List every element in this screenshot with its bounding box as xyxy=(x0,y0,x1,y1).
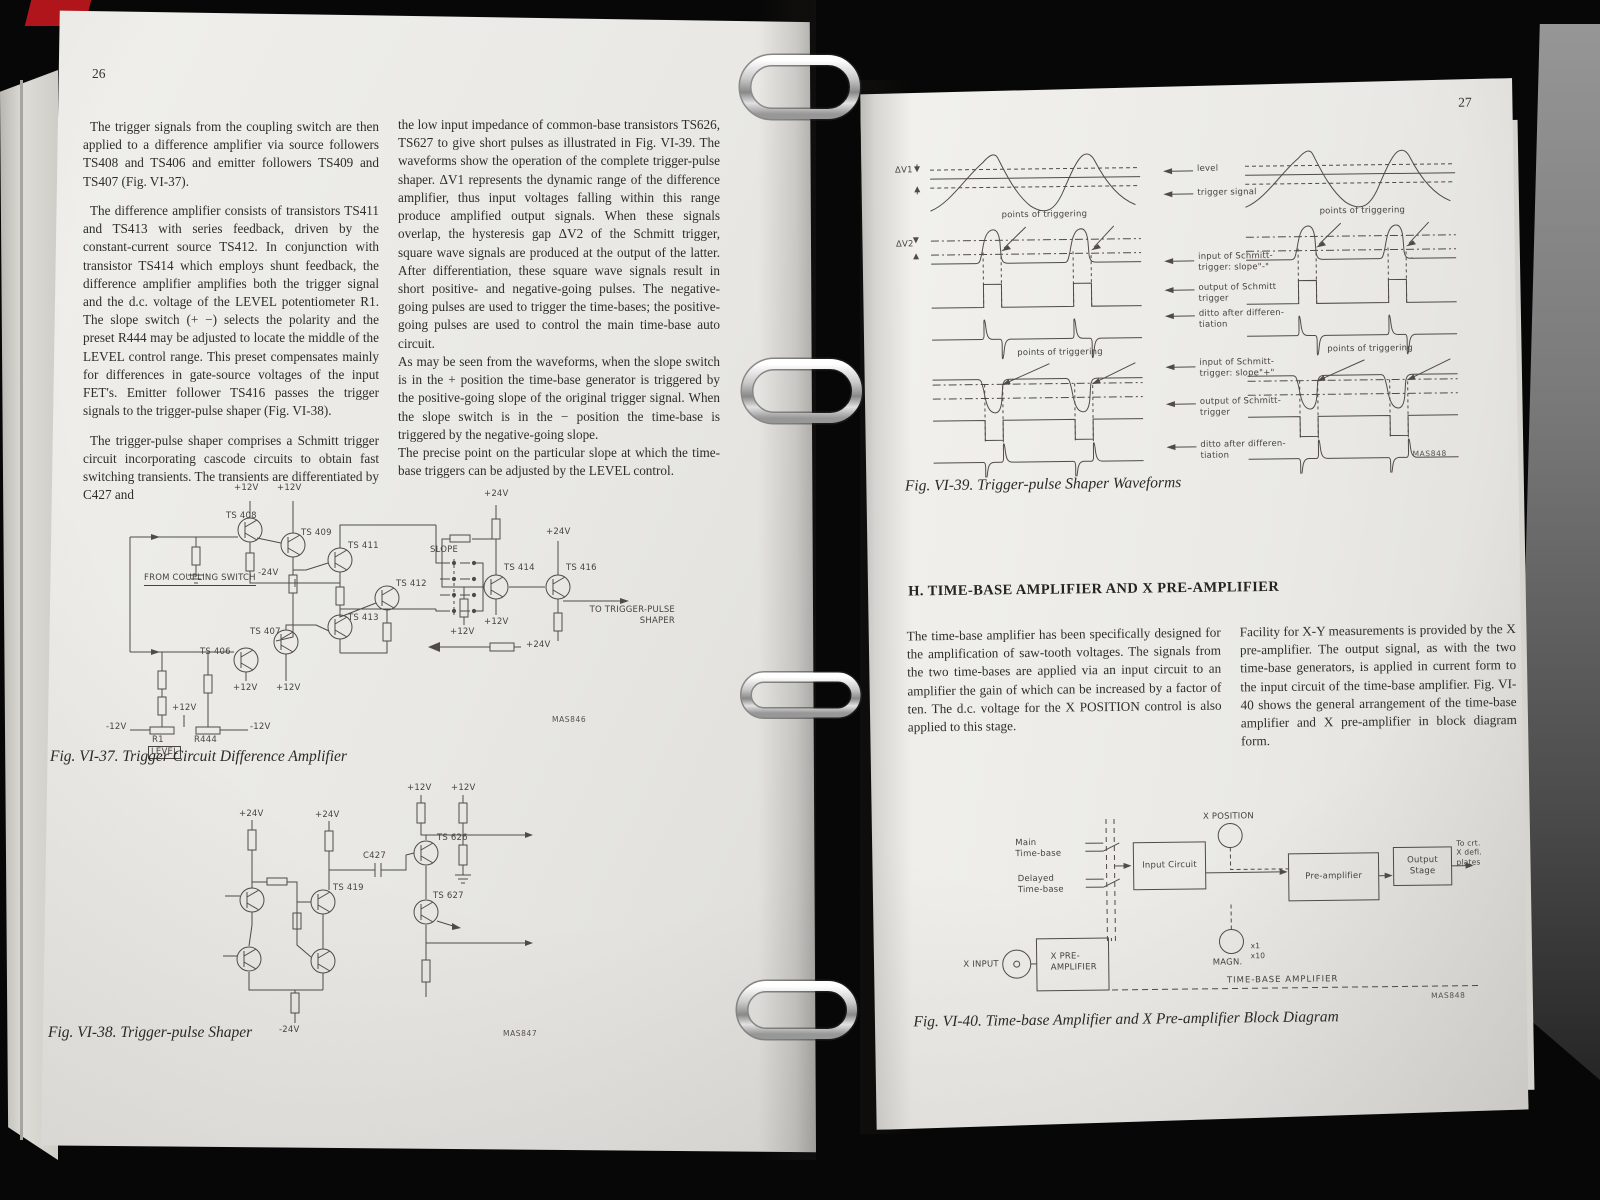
points-of-triggering-label: points of triggering xyxy=(1320,205,1406,217)
to-trigger-pulse-shaper-label: TO TRIGGER-PULSE SHAPER xyxy=(565,605,675,626)
voltage-label: -24V xyxy=(258,568,279,579)
voltage-label: +12V xyxy=(233,683,258,694)
voltage-label: +24V xyxy=(484,489,509,500)
section-h-col1: The time-base amplifier has been specifi… xyxy=(907,624,1222,737)
voltage-label: +12V xyxy=(172,703,197,714)
delta-v2-label: ΔV2 xyxy=(896,239,914,250)
schematic-drawing xyxy=(205,775,635,1040)
magn-x10-label: x10 xyxy=(1251,951,1266,961)
ditto-label: ditto after differen- tiation xyxy=(1199,308,1285,330)
main-time-base-label: Main Time-base xyxy=(1015,838,1061,860)
transistor-label: TS 626 xyxy=(437,833,468,844)
fig-vi-40-block-diagram: Main Time-base Delayed Time-base Input C… xyxy=(973,786,1486,1020)
voltage-label: +12V xyxy=(451,783,476,794)
r1-label: R1 xyxy=(152,735,164,746)
fig-vi-38-schematic: +24V +24V +12V +12V C427 TS 419 TS 626 T… xyxy=(205,775,635,1040)
fig-vi-39-caption: Fig. VI-39. Trigger-pulse Shaper Wavefor… xyxy=(905,474,1182,495)
input-schmitt-minus-label: input of Schmitt- trigger: slope"-" xyxy=(1198,251,1273,273)
transistor-label: TS 414 xyxy=(504,563,535,574)
transistor-label: TS 412 xyxy=(396,579,427,590)
delta-v1-label: ΔV1 xyxy=(895,165,913,176)
voltage-label: +12V xyxy=(277,483,302,494)
right-column-text: the low input impedance of common-base t… xyxy=(398,116,720,480)
voltage-label: -24V xyxy=(279,1025,300,1036)
from-coupling-switch-label: FROM COUPLING SWITCH xyxy=(144,573,256,586)
magn-x1-label: x1 xyxy=(1250,941,1260,950)
voltage-label: +24V xyxy=(239,809,264,820)
magn-label: MAGN. xyxy=(1213,957,1243,968)
fig-vi-39-waveforms: ΔV1 ΔV2 level trigger signal points of t… xyxy=(895,126,1479,478)
voltage-label: +24V xyxy=(546,527,571,538)
paragraph: Facility for X-Y measurements is provide… xyxy=(1240,620,1518,751)
right-page: 27 xyxy=(860,78,1529,1130)
transistor-label: TS 406 xyxy=(200,647,231,658)
points-of-triggering-label: points of triggering xyxy=(1002,209,1088,221)
section-h-heading: H. TIME-BASE AMPLIFIER AND X PRE-AMPLIFI… xyxy=(908,579,1279,601)
transistor-label: TS 411 xyxy=(348,541,379,552)
points-of-triggering-label: points of triggering xyxy=(1327,343,1413,355)
page-number-right: 27 xyxy=(1458,95,1472,111)
voltage-label: +24V xyxy=(315,810,340,821)
page-number-left: 26 xyxy=(92,66,106,82)
section-h-col2: Facility for X-Y measurements is provide… xyxy=(1240,620,1518,751)
input-schmitt-plus-label: input of Schmitt- trigger: slope"+" xyxy=(1199,357,1274,379)
paragraph: the low input impedance of common-base t… xyxy=(398,116,720,353)
voltage-label: +12V xyxy=(407,783,432,794)
binder-ring xyxy=(737,668,867,724)
paragraph: The time-base amplifier has been specifi… xyxy=(907,624,1222,737)
voltage-label: +12V xyxy=(234,483,259,494)
paragraph: As may be seen from the waveforms, when … xyxy=(398,353,720,444)
waveform-drawing xyxy=(895,126,1479,478)
drawing-code: MAS848 xyxy=(1412,449,1446,458)
binder-photo: 26 The trigger signals from the coupling… xyxy=(0,0,1600,1200)
output-schmitt-label: output of Schmitt trigger xyxy=(1198,282,1276,304)
output-schmitt-label: output of Schmitt- trigger xyxy=(1200,396,1281,418)
level-label: level xyxy=(1197,164,1218,175)
fig-vi-37-schematic: +12V +12V FROM COUPLING SWITCH TS 408 TS… xyxy=(100,475,720,747)
trigger-signal-label: trigger signal xyxy=(1197,187,1256,198)
capacitor-label: C427 xyxy=(363,851,386,862)
left-page: 26 The trigger signals from the coupling… xyxy=(38,6,816,1158)
drawing-code: MAS847 xyxy=(503,1029,537,1038)
drawing-code: MAS848 xyxy=(1431,991,1465,1000)
fig-vi-37-caption: Fig. VI-37. Trigger Circuit Difference A… xyxy=(50,748,347,766)
time-base-amplifier-label: TIME-BASE AMPLIFIER xyxy=(1227,974,1339,986)
ditto-label: ditto after differen- tiation xyxy=(1200,439,1286,461)
pre-amplifier-block: Pre-amplifier xyxy=(1288,853,1379,901)
voltage-label: -12V xyxy=(106,722,127,733)
binder-ring xyxy=(732,976,864,1046)
slope-label: SLOPE xyxy=(430,545,458,556)
transistor-label: TS 627 xyxy=(433,891,464,902)
drawing-code: MAS846 xyxy=(552,715,586,724)
binder-ring xyxy=(737,354,869,430)
transistor-label: TS 409 xyxy=(301,528,332,539)
x-input-label: X INPUT xyxy=(961,959,999,970)
paragraph: The difference amplifier consists of tra… xyxy=(83,202,379,421)
x-position-label: X POSITION xyxy=(1203,811,1254,822)
voltage-label: +24V xyxy=(526,640,551,651)
to-crt-label: To crt. X defl. plates xyxy=(1456,838,1482,866)
transistor-label: TS 408 xyxy=(226,511,257,522)
binder-ring xyxy=(735,50,867,126)
delayed-time-base-label: Delayed Time-base xyxy=(1018,874,1064,896)
left-column-text: The trigger signals from the coupling sw… xyxy=(83,118,379,515)
output-stage-block: Output Stage xyxy=(1393,847,1451,886)
fig-vi-38-caption: Fig. VI-38. Trigger-pulse Shaper xyxy=(48,1024,252,1042)
voltage-label: +12V xyxy=(484,617,509,628)
transistor-label: TS 416 xyxy=(566,563,597,574)
voltage-label: -12V xyxy=(250,722,271,733)
fig-vi-40-caption: Fig. VI-40. Time-base Amplifier and X Pr… xyxy=(913,1008,1339,1031)
page-stack-line xyxy=(20,80,23,1140)
paragraph: The trigger signals from the coupling sw… xyxy=(83,118,379,191)
voltage-label: +12V xyxy=(276,683,301,694)
points-of-triggering-label: points of triggering xyxy=(1017,347,1103,359)
transistor-label: TS 407 xyxy=(250,627,281,638)
transistor-label: TS 419 xyxy=(333,883,364,894)
minus-switch-mark: - xyxy=(1410,253,1413,264)
input-circuit-block: Input Circuit xyxy=(1133,842,1206,890)
transistor-label: TS 413 xyxy=(348,613,379,624)
r444-label: R444 xyxy=(194,735,217,746)
x-pre-amplifier-block: X PRE- AMPLIFIER xyxy=(1051,951,1097,973)
voltage-label: +12V xyxy=(450,627,475,638)
